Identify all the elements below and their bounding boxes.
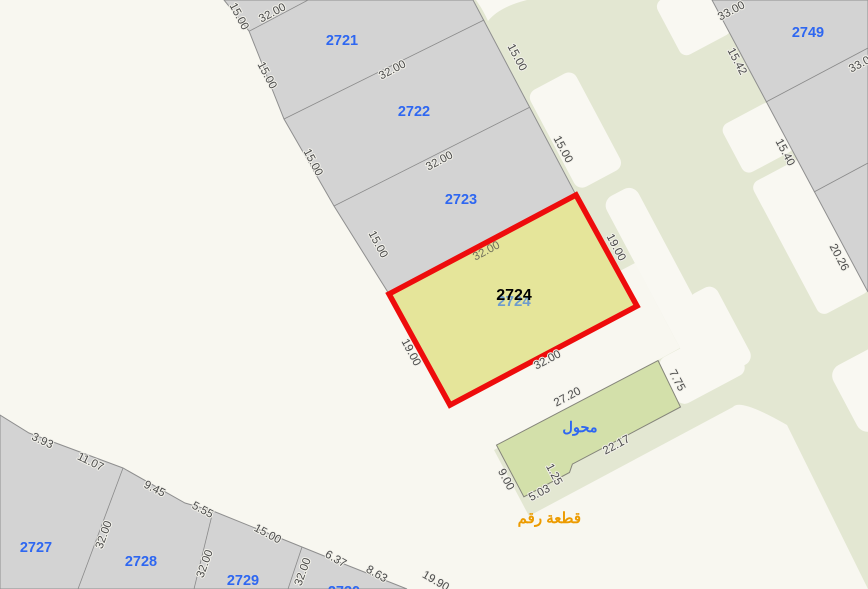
svg-text:2727: 2727 bbox=[20, 540, 52, 556]
svg-text:2749: 2749 bbox=[792, 25, 824, 41]
svg-text:2728: 2728 bbox=[125, 554, 157, 570]
svg-text:2729: 2729 bbox=[227, 573, 259, 589]
svg-text:قطعة رقم: قطعة رقم bbox=[518, 510, 581, 527]
svg-text:2724: 2724 bbox=[496, 287, 532, 304]
svg-text:2730: 2730 bbox=[328, 584, 360, 589]
svg-text:محول: محول bbox=[562, 420, 597, 436]
svg-text:2723: 2723 bbox=[445, 192, 477, 208]
svg-text:2722: 2722 bbox=[398, 104, 430, 120]
svg-text:2721: 2721 bbox=[326, 33, 358, 49]
